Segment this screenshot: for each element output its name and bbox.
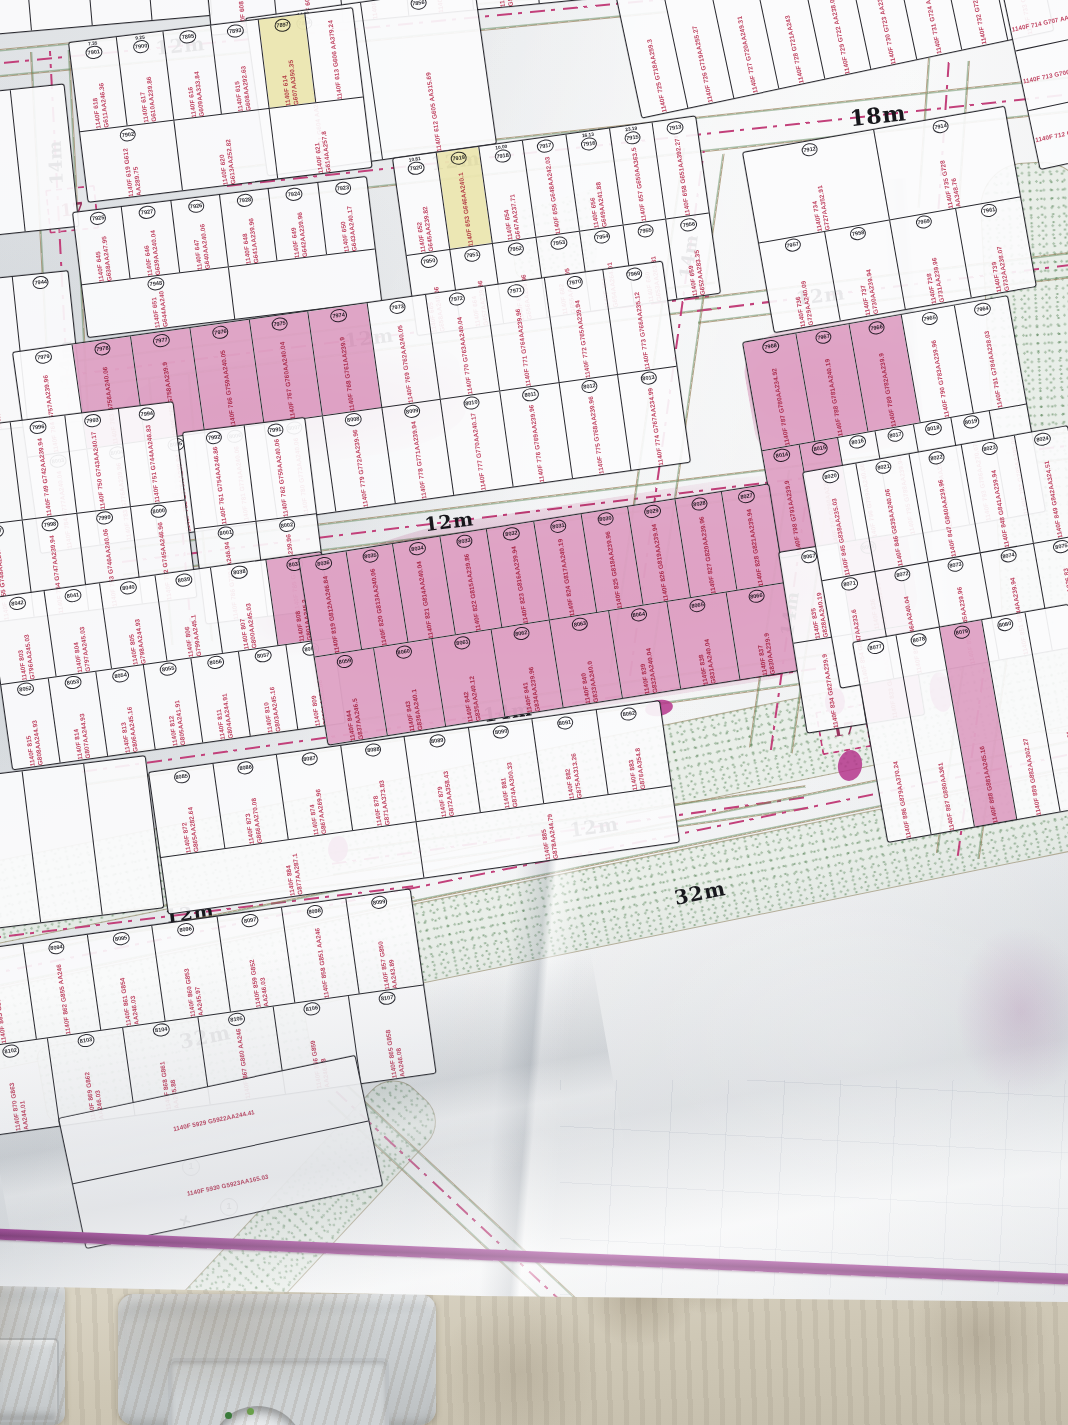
plot-id-label: 1140F 827 G820AA239.96 <box>697 510 718 594</box>
plot-id-label: 1140F 870 G863 AA244.01 <box>4 1058 30 1132</box>
plot-number-badge: 8071 <box>840 576 858 592</box>
plot-number-badge: 7856 <box>409 0 427 10</box>
plot-number-badge: 8065 <box>688 597 706 612</box>
plot-id-label: 1140F 837 G830AA239.9 <box>750 602 777 676</box>
plot-id-label: 1140F 805 G798AA244.93 <box>122 594 148 666</box>
plot: 80851140F 872 G865AA282.64 <box>149 764 224 857</box>
plot-id-label: 1140F 714 G707 AA253.8 <box>1011 10 1068 33</box>
plot: 80871140F 874 G867AA269.96 <box>276 746 352 839</box>
plot-id-label: 1140F 728 G721AA243 <box>771 0 806 84</box>
plot-id-label: 1140F 618 G611AA246.36 <box>87 59 111 129</box>
plot-number-badge: 7900 <box>132 39 150 54</box>
plot-number-badge: 8093 <box>0 949 1 964</box>
plot-id-label: 1140F 779 G772AA239.96 <box>350 427 369 508</box>
plot: 81071140F 865 G858 AA246.08 <box>348 985 436 1083</box>
plot: 1140F 620 G613AA252.82 <box>174 109 277 190</box>
plot-id-label: 1140F 647 G640AA240.06 <box>189 212 212 270</box>
plot-id-label: 1140F 846 G839AA240.06 <box>881 473 905 566</box>
plot-id-label: 1140F 844 G837AA246.5 <box>338 667 365 741</box>
plot-id-label: 1140F 865 G858 AA246.08 <box>380 1005 406 1079</box>
plot-number-badge: 8034 <box>408 540 426 555</box>
plot-id-label: 1140F 847 G840AA239.96 <box>934 464 958 557</box>
plot-id-label: 1140F 777 G770AA240.17 <box>468 410 487 491</box>
plot-id-label: 1140F 613 G606 AA379.24 <box>325 12 344 100</box>
plot-number-badge: 7970 <box>566 274 584 289</box>
plot-number-badge: 8002 <box>278 518 296 533</box>
plot-number-badge: 7915 <box>623 131 641 146</box>
plot-id-label: 1140F 614 G607AA350.35 <box>275 31 300 106</box>
plot-id-label: 1140F 655 G648AA242.03 <box>542 152 561 234</box>
plot-number-badge: 8094 <box>47 940 65 955</box>
plot-number-badge: 8012 <box>580 379 598 394</box>
plot-number-badge: 7948 <box>147 277 165 292</box>
plot-number-badge: 8079 <box>953 624 971 640</box>
plot-id-label: 1140F 820 G813AA240.06 <box>368 562 389 646</box>
plot-number-badge: 7996 <box>29 419 47 434</box>
plot-id-label: 1140F 731 G724 AA244.99 <box>908 0 943 55</box>
plot-id-label: 1140F 821 G814AA240.04 <box>415 555 436 639</box>
plot-number-badge: 8080 <box>996 616 1014 632</box>
plot-number-badge: 8091 <box>556 715 574 730</box>
plot-number-badge: 8038 <box>230 564 248 579</box>
plot-number-badge: 7953 <box>550 235 568 250</box>
plot <box>145 0 211 20</box>
plot-number-badge: 8089 <box>428 733 446 748</box>
plot-id-label: 1140F 653 G646AA240.1 <box>456 165 475 247</box>
plot-number-badge: 8020 <box>821 468 839 484</box>
plot-id-label: 1140F 767 G760AA240.04 <box>277 330 297 419</box>
plot-id-label: 1140F 5929 G5922AA244.41 <box>172 1108 255 1133</box>
plot-number-badge: 7950 <box>420 254 438 269</box>
plot-id-label: 1140F 810 G803AA245.16 <box>256 662 282 734</box>
plot-block-B15: 80771140F 886 G879AA370.2480781140F 887 … <box>852 604 1068 843</box>
plot: 80891140F 879 G872AA358.43 <box>404 728 480 821</box>
plot-id-label: 1140F 838 G831AA240.04 <box>691 611 718 685</box>
plot-id-label: 1140F 739 G732AA238.07 <box>983 216 1012 293</box>
plot: 79251140F 645 G638AA247.95 <box>73 207 130 284</box>
plot-number-badge: 7992 <box>205 430 223 445</box>
plot: 80861140F 873 G866AA270.08 <box>212 755 288 848</box>
plot-number-badge: 8011 <box>522 387 540 402</box>
plot-id-label: 1140F 772 G765AA239.94 <box>572 289 592 378</box>
plot-id-label: 1140F 770 G763AA240.04 <box>454 305 474 394</box>
plot-row: 1140F 629 G622AA257.86 <box>0 85 78 238</box>
plot-block-B13 <box>0 755 164 931</box>
plot-number-badge: 7965 <box>920 310 938 326</box>
plot-id-label: 1140F 824 G817AA240.19 <box>556 533 577 617</box>
plot-number-badge: 7902 <box>119 127 137 142</box>
plot-number-badge: 8086 <box>236 760 254 775</box>
plot-number-badge: 8060 <box>395 644 413 659</box>
plot-id-label: 1140F 751 G744AA246.83 <box>144 420 162 502</box>
plot-id-label: 1140F 659 G652AA283.35 <box>682 231 707 297</box>
plot-number-badge: 8087 <box>300 751 318 766</box>
plot-number-badge: 7979 <box>34 349 52 364</box>
plot-id-label: 1140F 862 G855 AA246 <box>54 954 73 1035</box>
plot-id-label: 1140F 736 G729AA240.09 <box>786 251 815 328</box>
plot-number-badge: 7954 <box>593 229 611 244</box>
socket-wire-green <box>225 1412 232 1419</box>
plot-number-badge: 7969 <box>625 266 643 281</box>
plot: 79021140F 619 G612 AA289.75 <box>80 121 182 202</box>
plot-id-label: 1140F 860 G853 AA245.97 <box>179 935 206 1017</box>
plot-id-label: 1140F 738 G731AA239.96 <box>917 228 946 305</box>
power-socket-plate <box>118 1294 436 1425</box>
plot-id-label: 1140F 5930 G5923AA165.03 <box>186 1173 269 1198</box>
plot: 79241140F 649 G642AA239.96 <box>268 183 326 260</box>
plot-number-badge: 7972 <box>448 291 466 306</box>
plot-id-label: 1140F 845 G838AA235.03 <box>828 483 852 576</box>
plot-id-label: 1140F 775 G768AA239.96 <box>587 393 606 474</box>
plot-id-label: 1140F 735 G728 AA348.76 <box>934 132 963 209</box>
plot-id-label: 1140F 649 G642AA239.96 <box>287 200 310 258</box>
plot-number-badge: 8075 <box>1052 539 1068 555</box>
plot-id-label: 1140F 807 G800AA245.03 <box>232 578 258 650</box>
plot-number-badge: 7991 <box>266 422 284 437</box>
plot-number-badge: 8039 <box>175 572 193 587</box>
plot-number-badge: 8019 <box>962 414 980 430</box>
plot-id-label: 1140F 884 G877AA287.1 <box>281 840 304 897</box>
paper-crease <box>640 900 1068 1180</box>
plot-id-label: 1140F 620 G613AA252.82 <box>214 115 238 185</box>
plot-number-badge: 7901 <box>85 45 103 60</box>
plot-id-label: 1140F 778 G771AA239.94 <box>409 418 428 499</box>
plot-number-badge: 7944 <box>32 275 50 290</box>
plot-id-label: 1140F 822 G815AA239.86 <box>462 548 483 632</box>
plot-id-label: 1140F 771 G764AA239.96 <box>513 297 533 386</box>
plot-number-badge: 8059 <box>336 653 354 668</box>
plot-number-badge: 7994 <box>138 406 156 421</box>
plot-number-badge: 8066 <box>747 588 765 603</box>
plot-id-label: 1140F 813 G806AA245.16 <box>114 682 140 754</box>
plot-number-badge: 7977 <box>152 333 170 348</box>
plot-number-badge: 8057 <box>254 648 272 663</box>
plot-id-label: 1140F 762 G755AA240.06 <box>272 437 290 517</box>
plot-number-badge: 8036 <box>314 555 332 570</box>
photo-of-map-on-wall: 12m 12m 18m 12m 12m 12m 12m 14m 12m <box>0 0 1068 1425</box>
plot-number-badge: 8098 <box>305 903 323 918</box>
plot-id-label: 1140F 654 G647AA237.71 <box>496 163 523 242</box>
plot-number-badge: 8015 <box>811 441 829 457</box>
plot-number-badge: 7955 <box>636 223 654 238</box>
plot-number-badge: 8033 <box>455 533 473 548</box>
plot-id-label: 1140F 768 G761AA239.9 <box>336 322 356 411</box>
plot-number-badge: 7897 <box>274 17 292 32</box>
plot-id-label: 1140F 648 G641AA239.96 <box>238 206 261 264</box>
plot-id-label: 1140F 749 G742AA239.94 <box>35 434 53 516</box>
light-switch-plate <box>0 1280 65 1425</box>
plot-id-label: 1140F 804 G797AA245.03 <box>66 601 92 673</box>
plot-id-label: 1140F 842 G835AA240.12 <box>456 649 483 723</box>
plot-block-B1: 7.3579011140F 618 G611AA246.369.25790011… <box>68 7 373 203</box>
plot-number-badge: 7924 <box>285 186 303 201</box>
socket-wire-lightgreen <box>247 1408 254 1415</box>
plot-number-badge: 8073 <box>946 557 964 573</box>
plot-number-badge: 8102 <box>2 1044 20 1059</box>
plot-row: 79921140F 761 G754AA246.8679911140F 762 … <box>183 418 316 528</box>
plot-id-label: 1140F 859 G852 AA246.03 <box>243 926 270 1008</box>
plot-id-label: 1140F 617 G610AA239.86 <box>134 53 158 123</box>
plot-id-label: 1140F 863 G856 AA241.9 <box>0 963 8 1044</box>
plot-id-label: 1140F 840 G833AA240.0 <box>573 630 600 704</box>
plot-id-label: 1140F 646 G639AA240.04 <box>140 218 163 276</box>
plot-number-badge: 7993 <box>83 413 101 428</box>
plot-number-badge: 8061 <box>453 635 471 650</box>
plot-id-label: 1140F 858 G851 AA246 <box>312 918 331 999</box>
plot-number-badge: 8104 <box>152 1023 170 1038</box>
plot-row: 80771140F 886 G879AA370.2480781140F 887 … <box>853 605 1068 842</box>
plot-id-label: 1140F 774 G767AA234.99 <box>646 385 665 466</box>
plot-number-badge: 7928 <box>236 192 254 207</box>
plot: 80921140F 883 G876AA354.8 <box>595 701 671 794</box>
plot-id-label: 1140F 885 G878AA244.79 <box>536 804 559 861</box>
plot-number-badge: 8022 <box>927 450 945 466</box>
plot-number-badge: 7975 <box>270 316 288 331</box>
plot-id-label: 1140F 806 G799AA245.1 <box>177 586 203 658</box>
plot-id-label: 1140F 615 G608AA292.63 <box>228 37 253 112</box>
plot: 79911140F 762 G755AA240.06 <box>243 418 316 520</box>
plot-id-label: 1140F 787 G780AA234.92 <box>768 353 792 446</box>
plot-id-label: 1140F 638 G631AA240.4 <box>0 295 3 430</box>
plot-id-label: 1140F 650 G643AA240.17 <box>336 194 359 252</box>
plot-id-label: 1140F 657 G650AA363.5 <box>630 145 649 222</box>
plot-number-badge: 8107 <box>378 991 396 1006</box>
plot: 78561140F 612 G605 AA315.69 <box>360 0 496 159</box>
plot-number-badge: 7971 <box>507 283 525 298</box>
pink-water-stain <box>955 925 1068 1100</box>
plot-id-label: 1140F 873 G866AA270.08 <box>239 774 264 845</box>
plot-id-label: 1140F 658 G651AA392.27 <box>672 134 691 216</box>
plot: 80911140F 882 G875AA313.26 <box>531 710 607 803</box>
plot-id-label: 1140F 621 G614AA257.8 <box>308 104 332 174</box>
plot-id-label: 1140F 828 G821AA239.94 <box>744 503 765 587</box>
plot-number-badge: 8030 <box>596 511 614 526</box>
plot-id-label: 1140F 811 G804AA244.91 <box>209 669 235 741</box>
plot-number-badge: 8014 <box>773 447 791 463</box>
plot-number-badge: 8021 <box>874 459 892 475</box>
plot-number-badge: 7964 <box>973 301 991 317</box>
plot-id-label: 1140F 788 G781AA240.19 <box>821 343 845 436</box>
plot-id-label: 1140F 773 G766AA235.12 <box>631 281 651 370</box>
plot-id-label: 1140F 791 G784AA238.03 <box>980 315 1004 408</box>
plot-number-badge: 7956 <box>680 217 698 232</box>
plot: 79941140F 751 G744AA246.83 <box>118 402 184 505</box>
plot-number-badge: 7973 <box>389 299 407 314</box>
plot-number-badge: 7976 <box>211 324 229 339</box>
plot-number-badge: 7919 <box>450 150 468 165</box>
plot-number-badge: 8054 <box>112 668 130 683</box>
plot <box>25 0 91 30</box>
plot-id-label: 1140F 604 G597AA24 <box>493 0 515 7</box>
plot: 79261140F 647 G640AA240.06 <box>170 195 228 272</box>
plot-number-badge: 7952 <box>507 241 525 256</box>
plot-number-badge: 7997 <box>0 524 5 539</box>
switch-rocker <box>0 1338 59 1422</box>
plot-number-badge: 8096 <box>176 922 194 937</box>
plot-id-label: 1140F 826 G819AA239.94 <box>650 518 671 602</box>
plot-number-badge: 8028 <box>690 496 708 511</box>
plot-number-badge: 8074 <box>999 548 1017 564</box>
plot-number-badge: 8024 <box>1033 431 1051 447</box>
plot-number-badge: 8042 <box>8 595 26 610</box>
plot-number-badge: 8090 <box>492 724 510 739</box>
plot-number-badge: 8013 <box>640 371 658 386</box>
plot-number-badge: 7978 <box>93 341 111 356</box>
plot-number-badge: 8031 <box>549 518 567 533</box>
plot-number-badge: 7998 <box>41 517 59 532</box>
plot-id-label: 1140F 761 G754AA246.86 <box>211 444 229 524</box>
plot-number-badge: 8103 <box>77 1033 95 1048</box>
plot: 80131140F 774 G767AA234.99 <box>617 366 689 470</box>
plot-id-label: 1140F 726 G719AA255.27 <box>677 0 715 104</box>
plot-id-label: 1140F 713 G706 AA253.8 <box>1022 62 1068 85</box>
plot-id-label: 1140F 812 G805AA241.91 <box>161 675 187 747</box>
plot-number-badge: 8029 <box>643 503 661 518</box>
plot-id-label: 1140F 872 G865AA282.64 <box>175 783 200 854</box>
plot-id-label: 1140F 629 G622AA257.86 <box>0 94 2 235</box>
plot-number-badge: 7913 <box>666 120 684 135</box>
plot-id-label: 1140F 651 G644AA240.1 <box>149 291 169 329</box>
plot-number-badge: 7951 <box>463 248 481 263</box>
plot: 79611140F 739 G732AA238.07 <box>955 197 1036 298</box>
plot-number-badge: 7912 <box>800 141 818 157</box>
plot-id-label: 1140F 645 G638AA247.95 <box>91 224 114 282</box>
plot-number-badge: 7895 <box>179 29 197 44</box>
plot-id-label: 1140F 734 G727AA352.91 <box>803 155 832 232</box>
plot-id-label: 1140F 652 G645AA239.82 <box>409 175 436 254</box>
plot-id-label: 1140F 848 G841AA239.94 <box>987 455 1011 548</box>
plot-number-badge: 8001 <box>217 525 235 540</box>
plot-id-label: 1140F 874 G867AA269.96 <box>303 765 328 836</box>
plot-id-label: 1140F 815 G808AA244.93 <box>19 695 45 767</box>
plot-id-label: 1140F 823 G816AA239.94 <box>509 540 530 624</box>
plot-number-badge: 8056 <box>207 655 225 670</box>
plot-id-label: 1140F 882 G875AA313.26 <box>558 729 583 800</box>
plot-number-badge: 7914 <box>931 118 949 134</box>
plot-number-badge: 8088 <box>364 742 382 757</box>
plot-id-label: 1140F 883 G876AA354.8 <box>622 720 647 791</box>
plot: 79231140F 650 G643AA240.17 <box>317 177 375 254</box>
plot-id-label: 1140F 769 G762AA240.05 <box>395 314 415 403</box>
plot-number-badge: 7968 <box>761 338 779 354</box>
plot <box>0 0 31 36</box>
plot-number-badge: 8009 <box>403 404 421 419</box>
plot-id-label: 1140F 712 G705 AA249.1 <box>1035 121 1068 144</box>
plot-id-label: 1140F 730 G723 AA232.26 <box>862 0 898 65</box>
plot-id-label: 1140F 819 G812AA246.84 <box>321 570 342 654</box>
plot-number-badge: 8085 <box>173 769 191 784</box>
plot: 1140F 613 G606 AA379.24 <box>305 8 363 102</box>
plot-number-badge: 7917 <box>536 138 554 153</box>
plot-number-badge: 8077 <box>866 639 884 655</box>
plot-id-label: 1140F 612 G605 AA315.69 <box>415 10 443 152</box>
plot-id-label: 1140F 790 G783AA239.96 <box>927 325 951 418</box>
plot-id-label: 1140F 616 G609AA333.84 <box>181 43 206 118</box>
plot-id-label: 1140F 656 G649AA241.88 <box>582 151 609 230</box>
plot-number-badge: 8008 <box>344 412 362 427</box>
plot-id-label: 1140F 766 G759AA240.05 <box>218 339 238 428</box>
plot: 80881140F 878 G871AA373.83 <box>340 737 416 830</box>
plot-id-label: 1140F 881 G874AA300.33 <box>494 738 519 809</box>
plot-id-label: 1140F 849 G842AA324.51 <box>1040 445 1064 538</box>
plot-number-badge: 7966 <box>867 320 885 336</box>
plot-id-label: 1140F 843 G836AA240.1 <box>397 658 424 732</box>
plot-number-badge: 8052 <box>16 682 34 697</box>
plot-id-label: 1140F 825 G818AA239.96 <box>603 525 624 609</box>
plot-number-badge: 8097 <box>241 912 259 927</box>
plot-number-badge: 8035 <box>361 548 379 563</box>
plot-id-label: 1140F 737 G730AA239.94 <box>852 240 881 317</box>
plot: 79281140F 648 G641AA239.96 <box>219 189 277 266</box>
plot-id-label: 1140F 879 G872AA358.43 <box>430 747 455 818</box>
plot: 1140F 621 G614AA257.8 <box>268 98 371 179</box>
plot-number-badge: 8092 <box>620 706 638 721</box>
plot-map-content: 12m 12m 18m 12m 12m 12m 12m 14m 12m <box>0 0 1068 1425</box>
plot-id-label: 1140F 878 G871AA373.83 <box>366 756 391 827</box>
plot-number-badge: 7925 <box>89 210 107 225</box>
plot-number-badge: 8106 <box>303 1001 321 1016</box>
plot-row <box>0 756 163 929</box>
plot-number-badge: 8016 <box>848 434 866 450</box>
plot-number-badge: 7927 <box>138 204 156 219</box>
plot-number-badge: 8032 <box>502 526 520 541</box>
plot: 80991140F 857 G850 AA243.89 <box>345 890 423 994</box>
plot-number-badge: 7893 <box>226 23 244 38</box>
plot-number-badge: 7885 <box>1033 0 1052 1</box>
plot-id-label: 1140F 839 G832AA240.04 <box>632 621 659 695</box>
plot-number-badge: 8078 <box>910 632 928 648</box>
plot-id-label: 1140F 776 G769AA239.96 <box>528 402 547 483</box>
plot-number-badge: 8062 <box>512 625 530 640</box>
plot-number-badge: 8027 <box>737 488 755 503</box>
plot-id-label: 1140F 729 G722 AA238.02 <box>816 0 852 75</box>
plot-id-label: 1140F 803 G796AA245.03 <box>11 609 37 681</box>
plot-number-badge: 8010 <box>462 395 480 410</box>
plot-number-badge: 8017 <box>886 427 904 443</box>
plot-number-badge: 7967 <box>814 329 832 345</box>
plot-number-badge: 8053 <box>64 675 82 690</box>
plot-id-label: 1140F 725 G718AA259.3 <box>634 0 669 114</box>
plot-id-label: 1140F 798 G791AA239.9 <box>779 462 803 555</box>
plot-number-badge: 7926 <box>187 198 205 213</box>
plot-id-label: 1140F 814 G807AA244.93 <box>66 689 92 761</box>
plot-id-label: 1140F 861 G854 AA246.03 <box>114 944 141 1026</box>
plot: 80901140F 881 G874AA300.33 <box>468 719 544 812</box>
plot-number-badge: 7974 <box>330 308 348 323</box>
plot-number-badge: 8041 <box>64 588 82 603</box>
plot-number-badge: 8018 <box>924 421 942 437</box>
plot-number-badge: 8040 <box>119 580 137 595</box>
plot-number-badge: 8072 <box>893 567 911 583</box>
map-sheet: 12m 12m 18m 12m 12m 12m 12m 14m 12m <box>0 0 1068 1425</box>
plot: 79271140F 646 G639AA240.04 <box>121 201 179 278</box>
plot-number-badge: 8000 <box>150 504 168 519</box>
plot-number-badge: 8095 <box>112 931 130 946</box>
plot <box>85 0 151 25</box>
plot-id-label: 1140F 841 G834AA239.96 <box>515 639 542 713</box>
plot-number-badge: 8055 <box>159 662 177 677</box>
plot-id-label: 1140F 750 G743AA240.17 <box>89 427 107 509</box>
plot-id-label: 1140F 619 G612 AA289.75 <box>121 141 144 197</box>
plot-number-badge: 7999 <box>95 511 113 526</box>
plot-number-badge: 8105 <box>228 1012 246 1027</box>
plot-number-badge: 8023 <box>980 440 998 456</box>
plot-number-badge: 7923 <box>334 180 352 195</box>
plot-id-label: 1140F 727 G720AA249.31 <box>722 0 760 94</box>
plot-id-label: 1140F 732 G725 AA238.31 <box>954 0 989 45</box>
plot-id-label: 1140F 857 G850 AA243.89 <box>372 908 399 990</box>
plot-number-badge: 8099 <box>370 894 388 909</box>
